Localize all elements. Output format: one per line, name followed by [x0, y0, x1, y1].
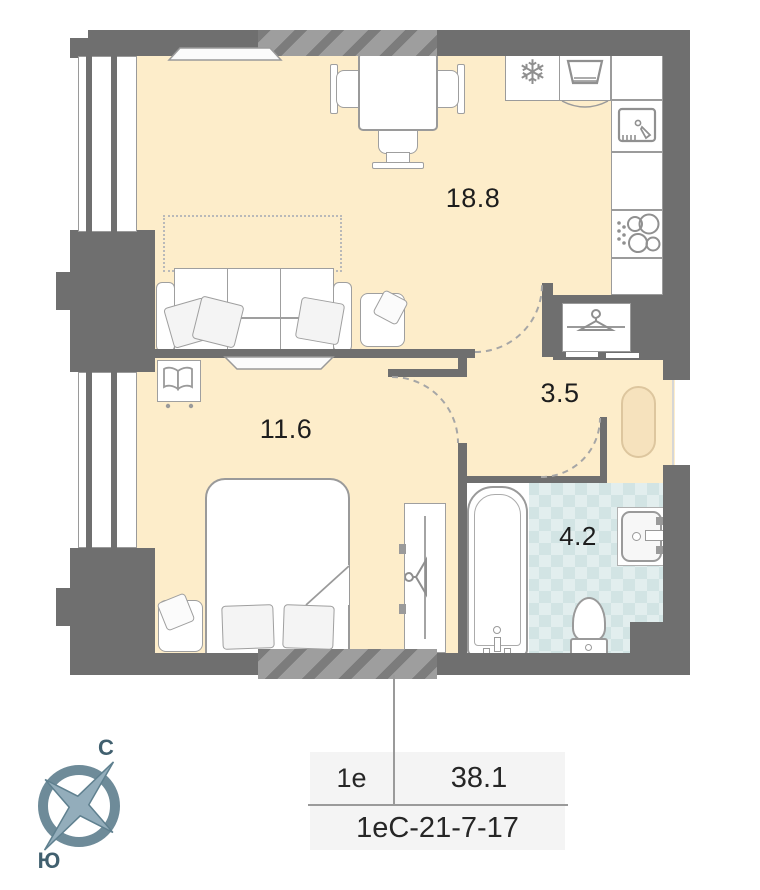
room-label-living-kitchen: 18.8 — [437, 183, 509, 214]
compass-north-label: С — [98, 735, 114, 760]
flat-type-value: 1е — [310, 763, 393, 794]
tv-bedroom — [225, 357, 333, 369]
floorplan-figure[interactable]: ❄ — [0, 0, 760, 890]
room-label-bathroom: 4.2 — [548, 521, 608, 552]
compass-rose-icon: С Ю — [22, 728, 140, 876]
flat-code-value: 1еС-21-7-17 — [310, 812, 565, 845]
blanket-fold-line — [306, 566, 349, 605]
shelf-foot-2 — [189, 404, 193, 408]
bathroom-door-arc — [541, 418, 600, 477]
tv-living — [169, 48, 281, 60]
living-door-arc — [475, 285, 542, 352]
room-label-bedroom: 11.6 — [250, 414, 322, 445]
bedroom-door-arc — [392, 377, 458, 443]
total-area-value: 38.1 — [393, 762, 565, 795]
info-table-divider — [308, 804, 568, 806]
room-label-hallway: 3.5 — [530, 378, 590, 409]
shelf-foot-1 — [166, 404, 170, 408]
compass-south-label: Ю — [38, 848, 61, 873]
washer-door-arc — [562, 101, 608, 107]
